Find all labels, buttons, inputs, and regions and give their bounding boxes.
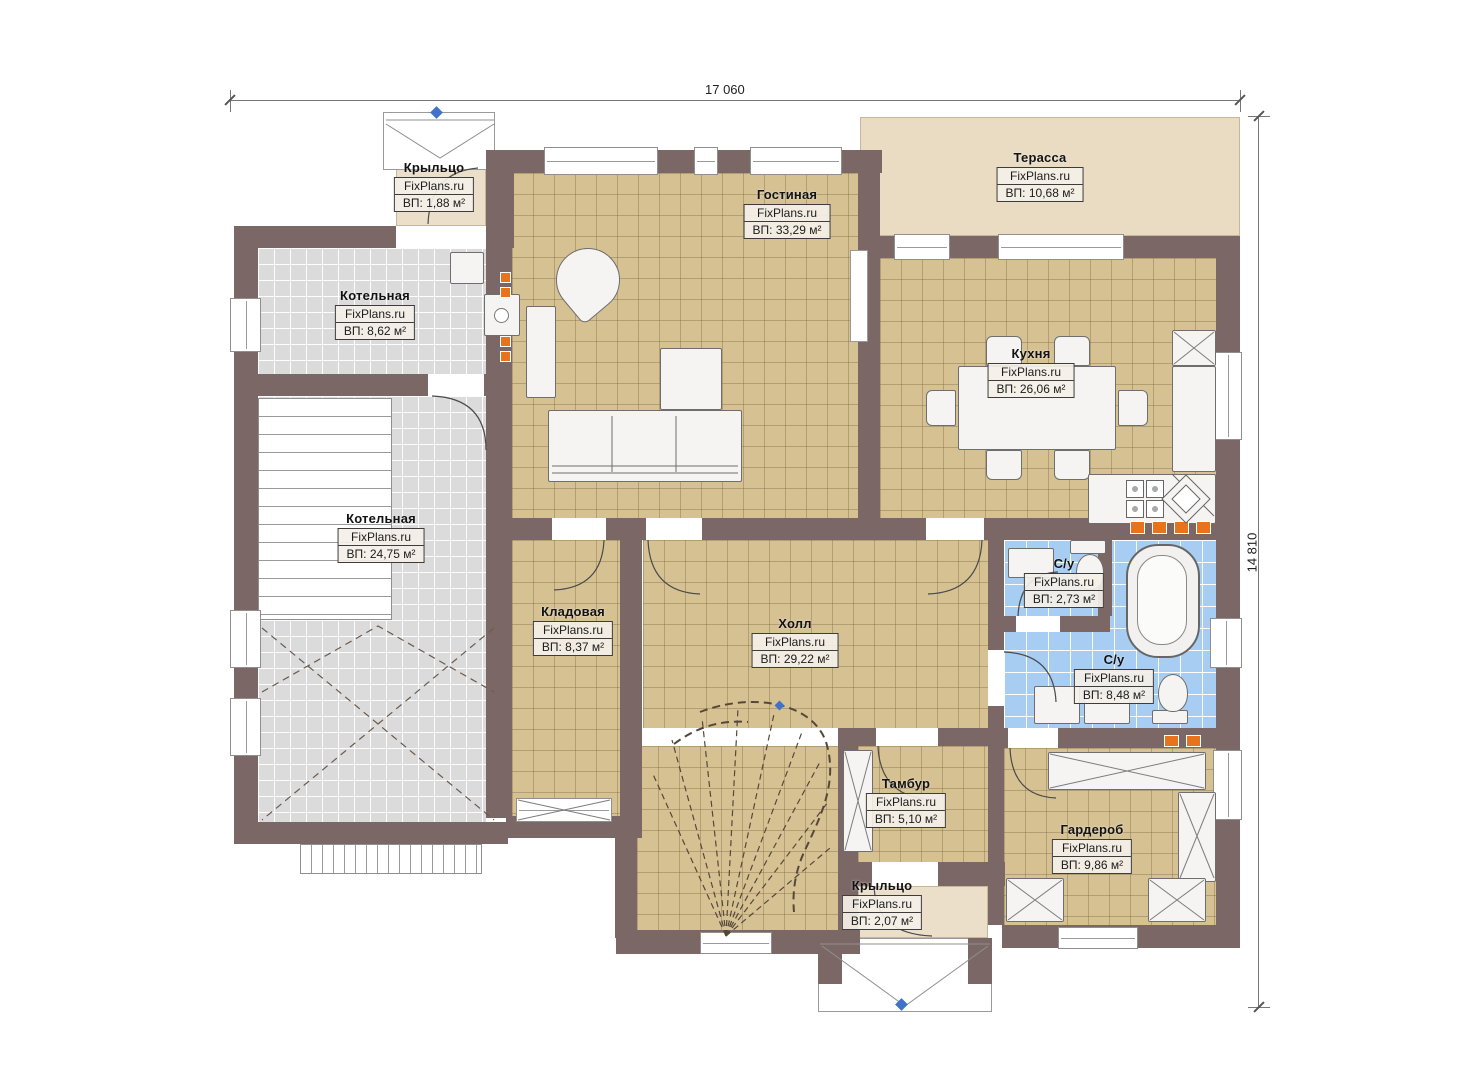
- window: [894, 234, 950, 260]
- stove-burner: [1146, 480, 1164, 498]
- chair: [986, 450, 1022, 480]
- room-label-boiler-small: Котельная FixPlans.ruВП: 8,62 м²: [335, 288, 415, 340]
- terrace-door-window: [998, 234, 1124, 260]
- vent-marker: [500, 351, 511, 362]
- room-name: Кладовая: [533, 604, 613, 619]
- room-label-kitchen: Кухня FixPlans.ruВП: 26,06 м²: [988, 346, 1075, 398]
- window: [544, 147, 658, 175]
- console-cabinet: [526, 306, 556, 398]
- watermark: FixPlans.ru: [395, 178, 473, 195]
- door-opening: [988, 650, 1004, 706]
- watermark: FixPlans.ru: [998, 168, 1083, 185]
- boiler-unit: [450, 252, 484, 284]
- room-label-wc-small: С/у FixPlans.ruВП: 2,73 м²: [1024, 556, 1104, 608]
- garage-apron-steps: [300, 844, 482, 874]
- watermark: FixPlans.ru: [1053, 840, 1131, 857]
- room-label-boiler-big: Котельная FixPlans.ruВП: 24,75 м²: [338, 511, 425, 563]
- vent-marker: [1196, 521, 1211, 534]
- kitchen-counter-east: [1172, 366, 1216, 472]
- vent-marker: [1152, 521, 1167, 534]
- room-label-tambour: Тамбур FixPlans.ruВП: 5,10 м²: [866, 776, 946, 828]
- room-area: ВП: 5,10 м²: [867, 811, 945, 827]
- watermark: FixPlans.ru: [336, 306, 414, 323]
- door-opening: [646, 518, 702, 540]
- room-name: Крыльцо: [842, 878, 922, 893]
- wardrobe-unit: [1148, 878, 1206, 922]
- vent-marker: [1186, 735, 1201, 747]
- watermark: FixPlans.ru: [753, 634, 838, 651]
- wall: [615, 816, 637, 938]
- window: [750, 147, 842, 175]
- room-area: ВП: 9,86 м²: [1053, 857, 1131, 873]
- toilet-bowl: [1158, 674, 1188, 712]
- room-name: С/у: [1024, 556, 1104, 571]
- vent-marker: [500, 336, 511, 347]
- room-name: Котельная: [338, 511, 425, 526]
- room-label-porch-top: Крыльцо FixPlans.ruВП: 1,88 м²: [394, 160, 474, 212]
- window: [694, 147, 718, 175]
- window: [516, 798, 612, 822]
- wardrobe-unit: [1048, 752, 1206, 790]
- wall: [620, 540, 642, 816]
- room-area: ВП: 33,29 м²: [745, 222, 830, 238]
- vent-marker: [1164, 735, 1179, 747]
- window: [1058, 927, 1138, 949]
- watermark: FixPlans.ru: [534, 622, 612, 639]
- room-area: ВП: 8,48 м²: [1075, 687, 1153, 703]
- room-name: Кухня: [988, 346, 1075, 361]
- room-area: ВП: 10,68 м²: [998, 185, 1083, 201]
- room-name: С/у: [1074, 652, 1154, 667]
- room-name: Гардероб: [1052, 822, 1132, 837]
- door-opening: [1016, 616, 1060, 632]
- door-opening: [424, 226, 482, 248]
- vent-marker: [500, 272, 511, 283]
- fireplace-flue: [494, 308, 509, 323]
- wall: [818, 938, 842, 984]
- room-name: Крыльцо: [394, 160, 474, 175]
- vent-marker: [1130, 521, 1145, 534]
- door-opening: [428, 374, 484, 396]
- window: [1213, 352, 1242, 440]
- coffee-table: [660, 348, 722, 410]
- watermark: FixPlans.ru: [339, 529, 424, 546]
- wall: [1216, 236, 1240, 948]
- room-area: ВП: 8,62 м²: [336, 323, 414, 339]
- bathtub-inner: [1137, 555, 1187, 645]
- room-area: ВП: 26,06 м²: [989, 381, 1074, 397]
- floor-plan: Крыльцо FixPlans.ruВП: 1,88 м² Котельная…: [0, 0, 1474, 1080]
- watermark: FixPlans.ru: [1025, 574, 1103, 591]
- room-label-hall: Холл FixPlans.ruВП: 29,22 м²: [752, 616, 839, 668]
- room-name: Гостиная: [744, 187, 831, 202]
- room-area: ВП: 29,22 м²: [753, 651, 838, 667]
- window: [1210, 618, 1242, 668]
- door-opening: [876, 728, 938, 746]
- room-name: Тамбур: [866, 776, 946, 791]
- room-label-wardrobe: Гардероб FixPlans.ruВП: 9,86 м²: [1052, 822, 1132, 874]
- room-area: ВП: 1,88 м²: [395, 195, 473, 211]
- watermark: FixPlans.ru: [1075, 670, 1153, 687]
- chair: [1118, 390, 1148, 426]
- door-opening: [1008, 728, 1058, 748]
- sliding-door-leaf: [850, 250, 868, 342]
- room-name: Терасса: [997, 150, 1084, 165]
- stove-burner: [1126, 500, 1144, 518]
- window: [700, 932, 772, 954]
- room-label-wc-big: С/у FixPlans.ruВП: 8,48 м²: [1074, 652, 1154, 704]
- dimension-top-label: 17 060: [705, 82, 745, 97]
- room-label-porch-bottom: Крыльцо FixPlans.ruВП: 2,07 м²: [842, 878, 922, 930]
- straight-stairs: [258, 398, 392, 620]
- watermark: FixPlans.ru: [867, 794, 945, 811]
- window: [230, 698, 261, 756]
- room-label-living: Гостиная FixPlans.ruВП: 33,29 м²: [744, 187, 831, 239]
- dimension-line-top: [230, 100, 1240, 101]
- chair: [926, 390, 956, 426]
- door-opening: [926, 518, 984, 540]
- toilet-tank: [1070, 540, 1106, 554]
- stove-burner: [1146, 500, 1164, 518]
- sofa: [548, 410, 742, 482]
- window: [1213, 750, 1242, 820]
- wardrobe-unit: [1178, 792, 1216, 882]
- wardrobe-unit: [1006, 878, 1064, 922]
- stair-room-floor: [637, 746, 838, 930]
- wall: [234, 822, 508, 844]
- room-label-terrace: Терасса FixPlans.ruВП: 10,68 м²: [997, 150, 1084, 202]
- watermark: FixPlans.ru: [745, 205, 830, 222]
- room-area: ВП: 8,37 м²: [534, 639, 612, 655]
- vent-marker: [1174, 521, 1189, 534]
- watermark: FixPlans.ru: [989, 364, 1074, 381]
- room-area: ВП: 2,07 м²: [843, 913, 921, 929]
- door-opening: [552, 518, 606, 540]
- room-area: ВП: 2,73 м²: [1025, 591, 1103, 607]
- chair: [1054, 450, 1090, 480]
- wall: [234, 226, 396, 248]
- toilet-tank: [1152, 710, 1188, 724]
- window: [230, 298, 261, 352]
- storage-floor: [512, 540, 622, 816]
- room-label-storage: Кладовая FixPlans.ruВП: 8,37 м²: [533, 604, 613, 656]
- wall: [968, 938, 992, 984]
- room-name: Котельная: [335, 288, 415, 303]
- room-name: Холл: [752, 616, 839, 631]
- room-area: ВП: 24,75 м²: [339, 546, 424, 562]
- dimension-right-label: 14 810: [1245, 523, 1260, 583]
- vent-marker: [500, 287, 511, 298]
- window: [230, 610, 261, 668]
- watermark: FixPlans.ru: [843, 896, 921, 913]
- kitchen-corner-unit: [1172, 330, 1216, 366]
- stove-burner: [1126, 480, 1144, 498]
